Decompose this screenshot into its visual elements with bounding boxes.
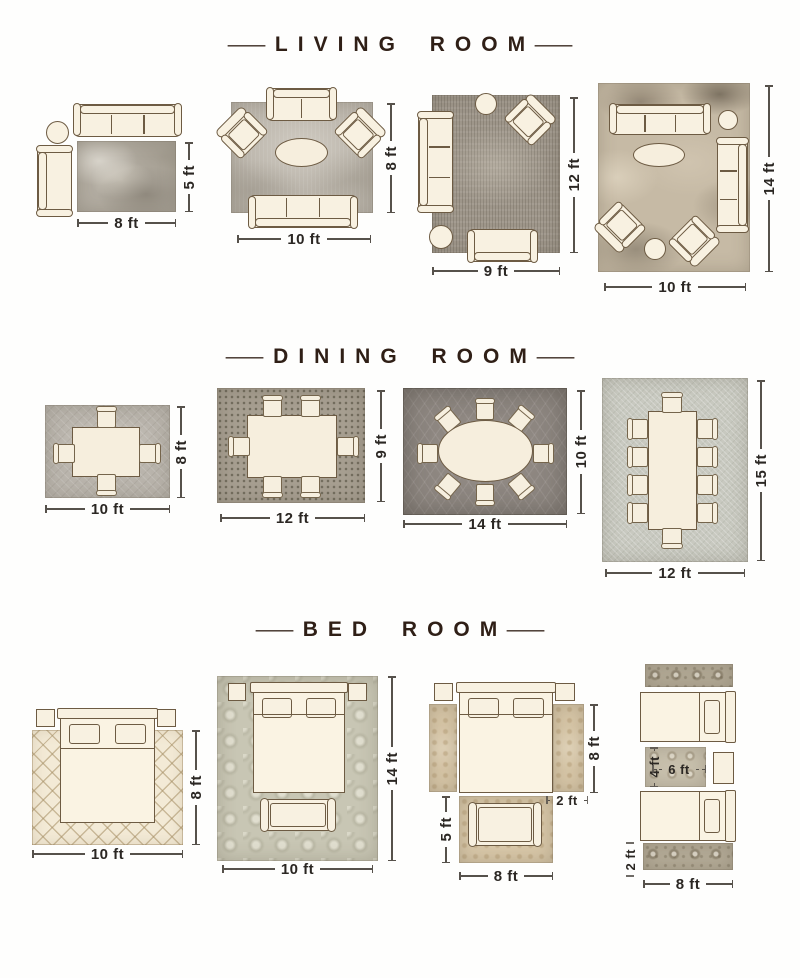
dimension-label: 8 ft <box>488 868 525 885</box>
width-dimension: 14 ft <box>403 516 567 532</box>
cushion-divider <box>111 115 112 134</box>
blanket-fold <box>60 748 155 749</box>
dining-chair <box>662 528 682 545</box>
nightstand <box>348 683 367 701</box>
blanket-fold <box>459 714 553 715</box>
height-dimension: 8 ft <box>383 103 399 213</box>
dimension-line <box>391 678 393 747</box>
dimension-line <box>224 868 275 870</box>
twin-bed <box>640 791 734 841</box>
dimension-line <box>584 800 587 801</box>
headboard <box>725 790 736 842</box>
nightstand <box>157 709 176 727</box>
dimension-line <box>445 847 447 862</box>
title-dash-right: — <box>536 345 574 369</box>
dimension-label: 8 ft <box>108 215 145 232</box>
dining-chair <box>631 503 648 523</box>
dining-chair <box>631 447 648 467</box>
cushion-divider <box>286 198 287 217</box>
sofa-arm <box>530 230 538 263</box>
dining-chair <box>232 437 250 456</box>
cushion-divider <box>720 170 737 171</box>
dimension-line <box>696 769 705 770</box>
dimension-line <box>434 270 478 272</box>
dimension-line <box>405 523 463 525</box>
title-dash-right: — <box>535 33 573 57</box>
twin-bed-runner <box>645 664 733 687</box>
dimension-line <box>461 875 488 877</box>
dimension-line <box>445 798 447 813</box>
pillow <box>468 698 498 718</box>
bench-arm <box>327 798 336 832</box>
dimension-line <box>508 523 566 525</box>
cushion-divider <box>319 198 320 217</box>
dimension-line <box>706 883 731 885</box>
bench-arm <box>260 798 269 832</box>
title-dash-left: — <box>226 345 264 369</box>
dimension-label: 8 ft <box>586 731 603 766</box>
dimension-label: 15 ft <box>753 449 770 492</box>
dimension-line <box>514 270 558 272</box>
nightstand <box>555 683 575 701</box>
title-dash-right: — <box>507 618 545 642</box>
dimension-line <box>593 706 595 732</box>
dining-room-title-text: DINING ROOM <box>273 345 537 369</box>
dimension-line <box>768 87 770 157</box>
dining-chair <box>421 444 438 463</box>
dining-chair <box>631 419 648 439</box>
sofa-arm <box>716 225 749 233</box>
sofa-arm <box>174 103 182 136</box>
nightstand <box>36 709 55 727</box>
dimension-line <box>188 144 190 160</box>
sofa-arm <box>609 103 617 134</box>
loveseat <box>267 88 336 121</box>
foot-rug-height-dimension: 5 ft <box>438 796 454 863</box>
dining-chair <box>301 476 320 494</box>
dimension-line <box>79 222 109 224</box>
dimension-label: 14 ft <box>462 516 507 533</box>
dimension-label: 5 ft <box>438 812 455 847</box>
dimension-label: 10 ft <box>275 861 320 878</box>
width-dimension: 10 ft <box>45 501 170 517</box>
sofa-three-seat <box>717 138 748 232</box>
headboard <box>250 682 348 693</box>
bedside-runner <box>429 704 457 792</box>
round-pouf <box>644 238 666 260</box>
height-dimension: 15 ft <box>753 380 769 561</box>
dining-chair <box>97 410 116 428</box>
cushion-divider <box>429 177 450 178</box>
sofa-three-seat <box>610 104 710 135</box>
cushion-divider <box>720 199 737 200</box>
bed-room-title: — BED ROOM — <box>0 618 800 642</box>
bench-arm <box>468 802 477 847</box>
title-dash-left: — <box>255 618 293 642</box>
dimension-line <box>195 732 197 771</box>
dimension-line <box>654 769 663 770</box>
dimension-line <box>239 238 282 240</box>
height-dimension: 8 ft <box>188 730 204 845</box>
pillow <box>69 724 100 744</box>
dimension-label: 12 ft <box>566 153 583 196</box>
dimension-label: 10 ft <box>85 501 130 518</box>
title-dash-left: — <box>228 33 266 57</box>
dimension-line <box>130 508 168 510</box>
dimension-label: 8 ft <box>670 876 707 893</box>
sofa-back <box>474 252 531 261</box>
sofa-arm <box>703 103 711 134</box>
cushion-divider <box>143 115 144 134</box>
dimension-label: 10 ft <box>573 430 590 473</box>
dimension-label: 10 ft <box>652 279 697 296</box>
dimension-label: 5 ft <box>181 160 198 195</box>
blanket-fold <box>699 692 700 742</box>
dining-chair <box>631 475 648 495</box>
height-dimension: 14 ft <box>761 85 777 272</box>
rug-size-guide: — LIVING ROOM — 5 ft 8 ft 8 ft 10 ft 12 … <box>0 0 800 978</box>
width-dimension: 10 ft <box>604 279 746 295</box>
width-dimension: 10 ft <box>32 846 183 862</box>
dimension-line <box>760 382 762 449</box>
dimension-line <box>34 853 85 855</box>
dimension-line <box>47 508 85 510</box>
dimension-line <box>760 492 762 559</box>
bench-arm <box>533 802 542 847</box>
dimension-line <box>188 194 190 210</box>
width-dimension: 10 ft <box>222 861 373 877</box>
dimension-line <box>320 868 371 870</box>
dimension-label: 10 ft <box>85 846 130 863</box>
twin-bed-runner <box>643 843 733 870</box>
headboard <box>725 691 736 743</box>
dimension-line <box>606 286 653 288</box>
dimension-label: 14 ft <box>384 747 401 790</box>
sofa-arm <box>36 209 73 217</box>
cushion-divider <box>301 99 302 118</box>
sofa-three-seat <box>74 104 181 137</box>
sofa-back <box>273 89 330 98</box>
dimension-line <box>327 238 370 240</box>
bed-bench <box>469 803 541 846</box>
height-dimension: 12 ft <box>566 97 582 253</box>
width-dimension: 9 ft <box>432 263 560 279</box>
dining-chair <box>476 484 494 502</box>
dimension-label: 8 ft <box>383 141 400 176</box>
foot-rug-width-dimension: 8 ft <box>459 868 553 884</box>
dimension-label: 12 ft <box>270 510 315 527</box>
oval-coffee-table <box>633 143 685 167</box>
runner-width-dimension: 2 ft <box>622 842 638 872</box>
dimension-line <box>222 517 270 519</box>
dimension-line <box>580 474 582 513</box>
dining-chair <box>263 476 282 494</box>
living-rug-8x5 <box>77 141 176 212</box>
chaise-lounge <box>37 146 72 216</box>
pillow <box>115 724 146 744</box>
oval-dining-table <box>438 420 533 482</box>
sofa-back <box>80 105 175 114</box>
round-pouf <box>429 225 453 249</box>
dining-chair <box>662 396 682 413</box>
dimension-line <box>698 572 744 574</box>
dining-chair <box>301 399 320 417</box>
cushion-divider <box>644 115 645 132</box>
dimension-line <box>593 766 595 792</box>
cushion-divider <box>429 146 450 147</box>
dimension-line <box>645 883 670 885</box>
queen-bed <box>459 683 553 793</box>
dimension-label: 6 ft <box>662 762 696 777</box>
sofa-back <box>738 144 747 226</box>
dimension-line <box>380 463 382 500</box>
nightstand <box>434 683 453 701</box>
dimension-line <box>315 517 363 519</box>
dining-room-title: — DINING ROOM — <box>0 345 800 369</box>
round-pouf <box>718 110 738 130</box>
dining-table <box>72 427 140 477</box>
pillow <box>306 698 336 718</box>
width-dimension: 12 ft <box>220 510 365 526</box>
dimension-line <box>607 572 653 574</box>
blanket-fold <box>699 791 700 841</box>
width-dimension: 8 ft <box>77 215 176 231</box>
dining-chair <box>139 444 157 463</box>
dining-chair <box>97 474 116 492</box>
round-side-table <box>46 121 69 144</box>
living-room-title: — LIVING ROOM — <box>0 33 800 57</box>
cushion-divider <box>675 115 676 132</box>
sofa-arm <box>417 111 454 119</box>
dimension-label: 10 ft <box>281 231 326 248</box>
sofa-back <box>616 105 704 114</box>
height-dimension: 9 ft <box>373 390 389 502</box>
dining-chair <box>57 444 75 463</box>
dimension-line <box>145 222 175 224</box>
dining-chair <box>533 444 550 463</box>
dimension-line <box>654 783 655 786</box>
loveseat <box>468 229 537 262</box>
dimension-line <box>768 200 770 270</box>
dimension-label: 9 ft <box>478 263 515 280</box>
runner-width-dimension: 2 ft <box>546 792 588 808</box>
queen-bed <box>60 709 155 823</box>
runner-length-dimension: 8 ft <box>643 876 733 892</box>
dining-table <box>247 415 337 478</box>
sofa-back <box>419 118 428 206</box>
living-room-title-text: LIVING ROOM <box>275 33 535 57</box>
dimension-line <box>573 197 575 252</box>
dimension-label: 14 ft <box>761 157 778 200</box>
small-rug-width-dimension: 6 ft <box>652 761 706 777</box>
height-dimension: 8 ft <box>173 406 189 498</box>
width-dimension: 12 ft <box>605 565 745 581</box>
dimension-line <box>390 105 392 141</box>
dimension-label: 12 ft <box>652 565 697 582</box>
sofa-back <box>38 152 47 210</box>
round-pouf <box>475 93 497 115</box>
height-dimension: 10 ft <box>573 390 589 514</box>
dining-table <box>648 411 697 530</box>
dining-chair <box>263 399 282 417</box>
twin-bed <box>640 692 734 742</box>
blanket-fold <box>253 714 345 715</box>
sofa-arm <box>329 87 337 120</box>
dimension-label: 9 ft <box>373 429 390 464</box>
dining-chair <box>697 419 714 439</box>
dimension-line <box>573 99 575 154</box>
dimension-line <box>195 805 197 844</box>
width-dimension: 10 ft <box>237 231 371 247</box>
dimension-line <box>698 286 745 288</box>
queen-bed <box>253 683 345 793</box>
dimension-label: 2 ft <box>623 844 638 876</box>
dimension-line <box>180 469 182 496</box>
dimension-label: 8 ft <box>173 435 190 470</box>
sofa-three-seat <box>418 112 453 212</box>
sofa-arm <box>266 87 274 120</box>
height-dimension: 14 ft <box>384 676 400 861</box>
dimension-label: 2 ft <box>550 793 584 808</box>
sofa-arm <box>248 196 256 229</box>
dimension-line <box>580 392 582 431</box>
pillow <box>513 698 543 718</box>
dining-chair <box>697 503 714 523</box>
headboard <box>456 682 556 693</box>
nightstand <box>228 683 246 701</box>
sofa-arm <box>716 137 749 145</box>
pillow <box>262 698 292 718</box>
height-dimension: 5 ft <box>181 142 197 212</box>
headboard <box>57 708 158 719</box>
sofa-arm <box>417 205 454 213</box>
pillow <box>704 700 720 735</box>
oval-coffee-table <box>275 138 328 167</box>
dimension-line <box>524 875 551 877</box>
dimension-line <box>130 853 181 855</box>
dimension-line <box>391 790 393 859</box>
bedside-runner <box>553 704 584 792</box>
bed-side-dimension: 8 ft <box>586 704 602 793</box>
dining-chair <box>697 475 714 495</box>
dining-chair <box>476 402 494 420</box>
sofa-arm <box>36 145 73 153</box>
bed-room-title-text: BED ROOM <box>303 618 508 642</box>
bed-bench <box>261 799 335 831</box>
sofa-arm <box>350 196 358 229</box>
sofa-back <box>255 218 351 227</box>
sofa-three-seat <box>249 195 357 228</box>
pillow <box>704 799 720 834</box>
dining-chair <box>697 447 714 467</box>
sofa-arm <box>467 230 475 263</box>
dimension-line <box>390 175 392 211</box>
dimension-line <box>380 392 382 429</box>
nightstand <box>713 752 734 784</box>
dimension-label: 8 ft <box>188 770 205 805</box>
dining-chair <box>337 437 355 456</box>
sofa-arm <box>73 103 81 136</box>
dimension-line <box>180 408 182 435</box>
